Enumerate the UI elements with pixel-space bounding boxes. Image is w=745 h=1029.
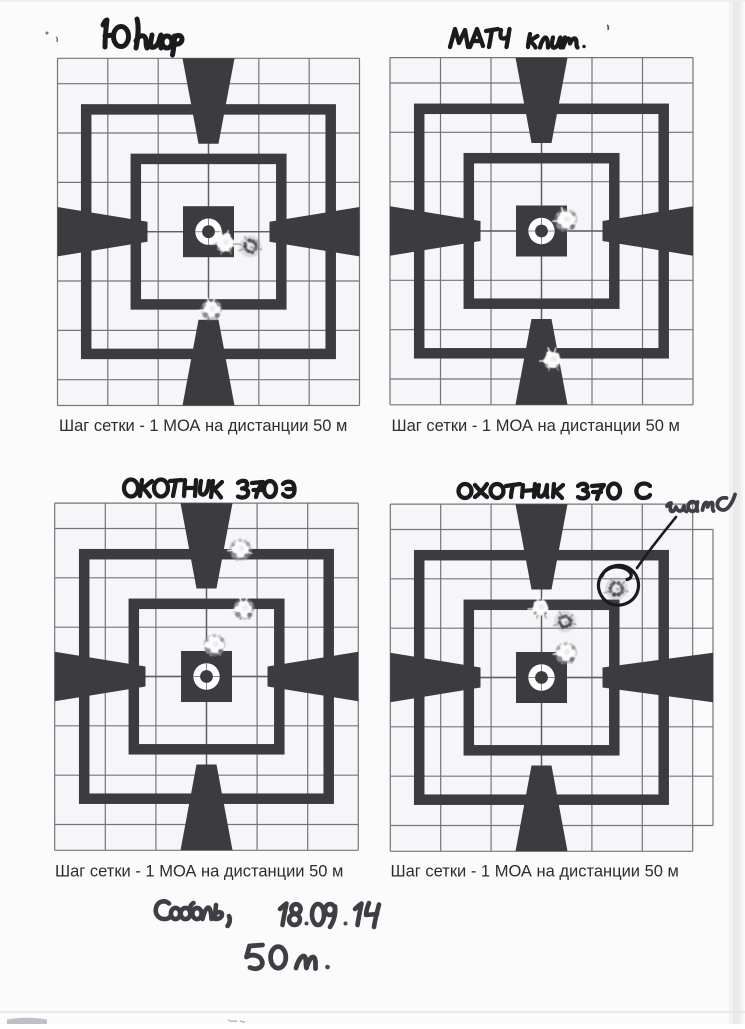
svg-text:Шаг сетки - 1 МОА на дистанции: Шаг сетки - 1 МОА на дистанции 50 м [392,417,680,435]
svg-text:Шаг сетки - 1 МОА на дистанции: Шаг сетки - 1 МОА на дистанции 50 м [391,863,679,881]
svg-text:Шаг сетки - 1 МОА на дистанции: Шаг сетки - 1 МОА на дистанции 50 м [59,417,347,435]
svg-text:Шаг сетки - 1 МОА на дистанции: Шаг сетки - 1 МОА на дистанции 50 м [55,863,343,881]
